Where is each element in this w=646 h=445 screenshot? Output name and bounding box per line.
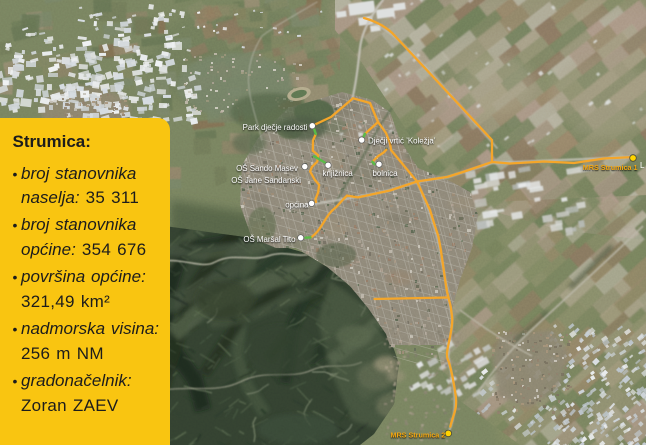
svg-text:MRS Strumica 1: MRS Strumica 1 <box>583 163 638 172</box>
svg-text:Park dječje radosti: Park dječje radosti <box>243 123 308 132</box>
svg-text:OŠ Maršal Tito: OŠ Maršal Tito <box>243 235 296 244</box>
svg-text:OŠ Jane Sandanski: OŠ Jane Sandanski <box>231 176 301 185</box>
svg-text:L: L <box>640 161 645 170</box>
svg-text:bolnica: bolnica <box>372 169 398 178</box>
svg-text:MRS Strumica 2: MRS Strumica 2 <box>391 430 446 439</box>
svg-text:OŠ Sando Masev: OŠ Sando Masev <box>236 164 298 173</box>
svg-text:općina: općina <box>285 200 309 209</box>
svg-text:Dječji vrtić ’Koležja’: Dječji vrtić ’Koležja’ <box>368 137 436 146</box>
svg-text:knjižnica: knjižnica <box>323 169 354 178</box>
